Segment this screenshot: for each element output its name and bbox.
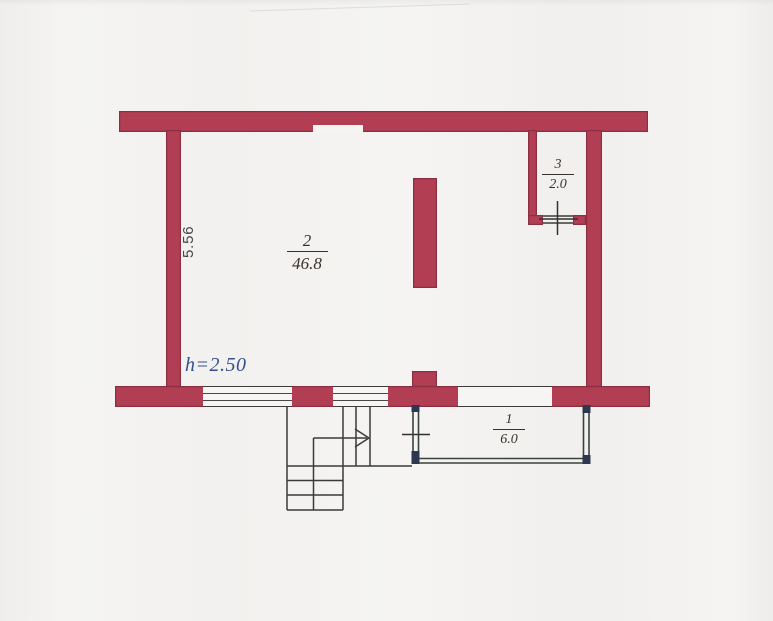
plan-linework xyxy=(0,0,773,621)
annex-left-wall xyxy=(413,407,419,458)
room-2-number: 2 xyxy=(276,232,338,249)
stairs-direction-arrow-icon xyxy=(314,429,370,447)
floor-plan: 2 46.8 3 2.0 1 6.0 h=2.50 5.56 xyxy=(0,0,773,621)
fraction-bar xyxy=(542,174,574,175)
annex-right-wall xyxy=(584,407,590,463)
room-3-label: 3 2.0 xyxy=(534,158,582,192)
staircase xyxy=(287,407,412,510)
room-1-number: 1 xyxy=(485,413,533,427)
room-1-label: 1 6.0 xyxy=(485,413,533,447)
room-1-area: 6.0 xyxy=(485,432,533,447)
fraction-bar xyxy=(287,251,328,252)
storage-door-tick-icon xyxy=(539,201,578,235)
room-2-label: 2 46.8 xyxy=(276,232,338,272)
left-wall-dimension: 5.56 xyxy=(180,226,197,258)
room-3-area: 2.0 xyxy=(534,177,582,192)
room-2-area: 46.8 xyxy=(276,254,338,272)
annex-bottom-wall xyxy=(413,459,589,464)
room-3-number: 3 xyxy=(534,158,582,172)
ceiling-height-label: h=2.50 xyxy=(185,354,247,377)
fraction-bar xyxy=(493,429,525,430)
scan-artifact-line xyxy=(250,4,470,11)
